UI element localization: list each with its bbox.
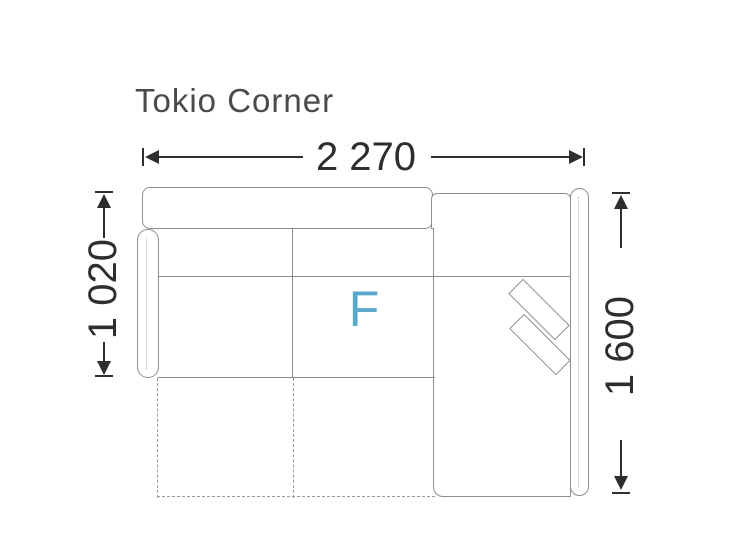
arrow-right-icon bbox=[569, 150, 583, 164]
chaise-depth-tick-bottom bbox=[612, 492, 630, 494]
width-dim-line-left bbox=[158, 156, 303, 158]
armrest-right bbox=[570, 188, 589, 496]
width-dim-line-right bbox=[431, 156, 570, 158]
seat-depth-line-bottom bbox=[103, 342, 105, 362]
chaise-depth-tick-top bbox=[612, 192, 630, 194]
seat-depth-tick-bottom bbox=[95, 375, 113, 377]
bed-extension-mid-dash bbox=[293, 378, 294, 498]
seat-divider-line bbox=[292, 229, 293, 378]
arrow-left-icon bbox=[145, 150, 159, 164]
chaise-depth-line-bottom bbox=[620, 440, 622, 477]
bed-extension-bottom-dash bbox=[157, 496, 435, 497]
seat-marker-label: F bbox=[334, 284, 394, 334]
seat-front-edge-line bbox=[158, 377, 435, 378]
backrest-main bbox=[142, 187, 433, 229]
backrest-chaise bbox=[431, 193, 571, 229]
arrow-up-icon bbox=[97, 194, 111, 208]
chaise-depth-line-top bbox=[620, 209, 622, 248]
bed-extension-left-dash bbox=[157, 378, 158, 498]
diagram-title: Tokio Corner bbox=[135, 82, 334, 120]
width-dim-label: 2 270 bbox=[291, 136, 441, 178]
chaise-depth-label: 1 600 bbox=[599, 271, 641, 421]
armrest-right-stitch bbox=[578, 197, 579, 487]
seat-back-cushion-line bbox=[159, 276, 570, 277]
width-dim-tick-right bbox=[583, 148, 585, 166]
armrest-left-stitch bbox=[146, 238, 147, 369]
width-dim-tick-left bbox=[142, 148, 144, 166]
arrow-down-icon bbox=[97, 361, 111, 375]
armrest-left bbox=[137, 229, 159, 378]
sofa-dimension-diagram: Tokio Corner 2 270 1 020 1 600 F bbox=[0, 0, 746, 557]
seat-depth-tick-top bbox=[95, 191, 113, 193]
arrow-up-icon bbox=[614, 195, 628, 209]
arrow-down-icon bbox=[614, 476, 628, 490]
